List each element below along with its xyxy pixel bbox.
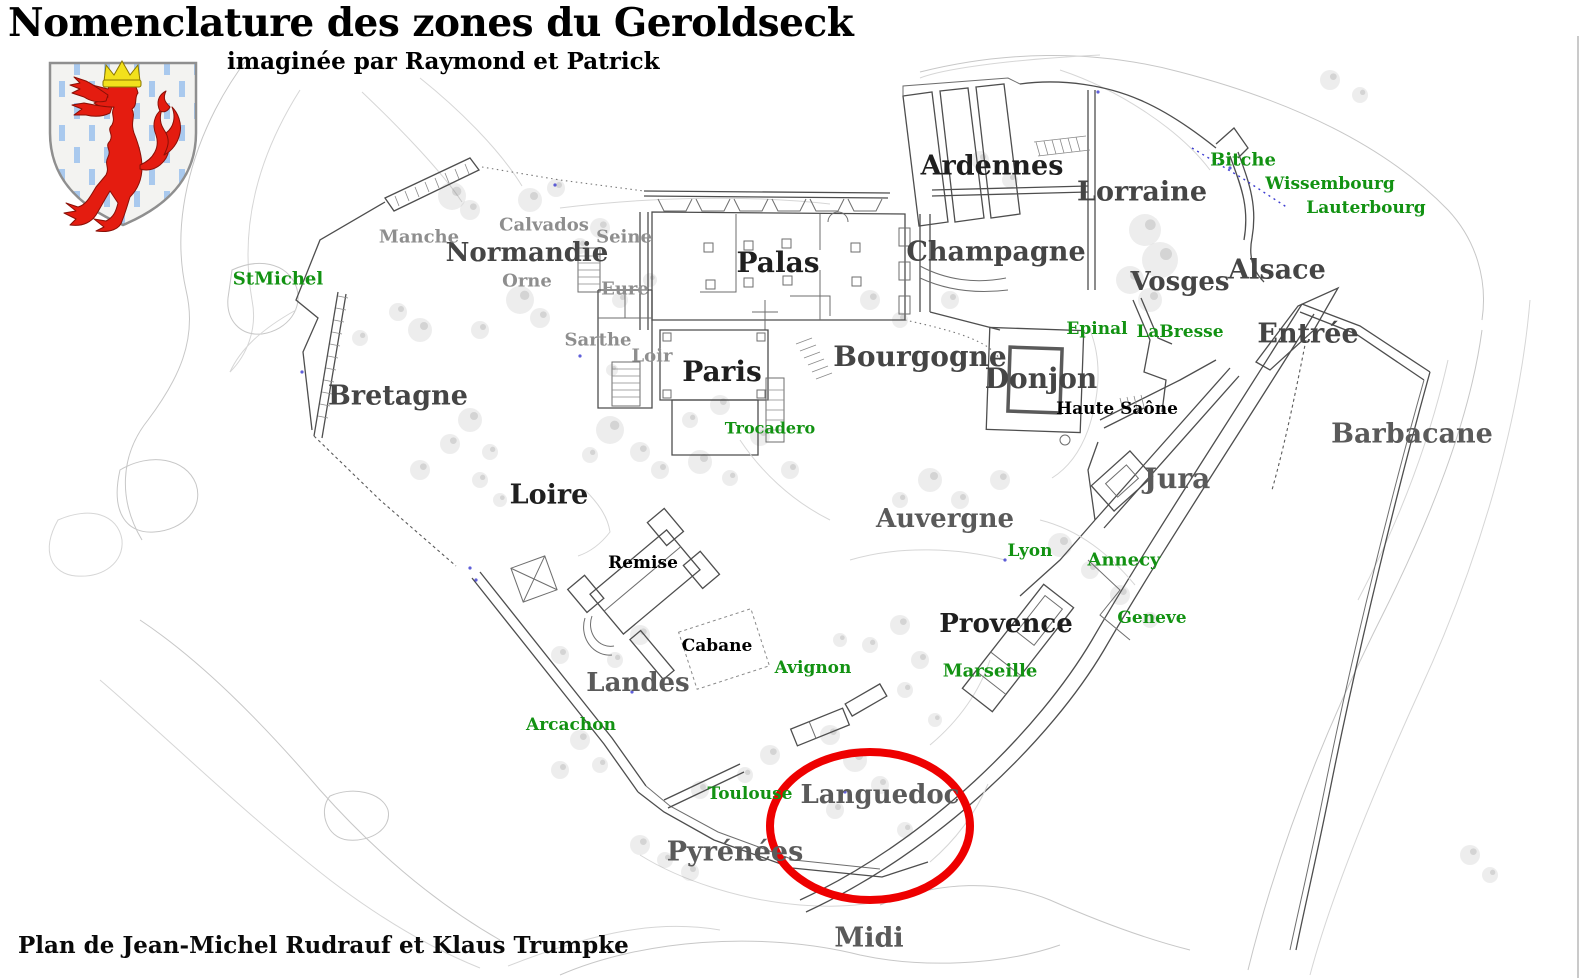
- zone-label-donjon: Donjon: [985, 365, 1097, 393]
- zone-label-toulouse: Toulouse: [708, 786, 793, 803]
- zone-label-pyrenees: Pyrénées: [667, 838, 804, 865]
- zone-label-haute-saone: Haute Saône: [1056, 401, 1178, 418]
- zone-label-manche: Manche: [379, 228, 459, 246]
- zone-label-jura: Jura: [1144, 465, 1211, 493]
- zone-label-languedoc: Languedoc: [800, 782, 959, 808]
- zone-label-auvergne: Auvergne: [876, 506, 1014, 532]
- zone-label-labresse: LaBresse: [1136, 324, 1223, 341]
- castle-plan-drawing: [0, 0, 1583, 978]
- zone-label-champagne: Champagne: [906, 238, 1085, 265]
- zone-label-seine: Seine: [596, 228, 652, 246]
- zone-label-ardennes: Ardennes: [921, 152, 1064, 179]
- zone-label-avignon: Avignon: [775, 660, 852, 677]
- zone-label-remise: Remise: [608, 555, 678, 572]
- zone-label-bourgogne: Bourgogne: [833, 343, 1006, 371]
- zone-label-annecy: Annecy: [1087, 551, 1160, 569]
- castle-walls: [230, 78, 1430, 950]
- zone-label-epinal: Epinal: [1066, 321, 1127, 338]
- zone-label-stmichel: StMichel: [233, 270, 323, 288]
- zone-label-loire: Loire: [510, 481, 589, 508]
- zone-label-lyon: Lyon: [1008, 543, 1053, 560]
- page-subtitle: imaginée par Raymond et Patrick: [227, 48, 660, 75]
- zone-label-calvados: Calvados: [499, 216, 589, 234]
- zone-label-paris: Paris: [682, 358, 762, 386]
- zone-label-lauterbourg: Lauterbourg: [1306, 200, 1425, 217]
- zone-label-orne: Orne: [502, 272, 552, 290]
- zone-label-loir: Loir: [632, 347, 673, 365]
- zone-label-entree: Entrée: [1257, 320, 1358, 347]
- zone-label-eure: Eure: [601, 280, 649, 298]
- zone-label-lorraine: Lorraine: [1077, 178, 1207, 205]
- page-title: Nomenclature des zones du Geroldseck: [8, 0, 853, 46]
- zone-label-alsace: Alsace: [1228, 256, 1326, 283]
- zone-label-cabane: Cabane: [682, 638, 753, 655]
- zone-label-vosges: Vosges: [1130, 269, 1229, 295]
- zone-label-midi: Midi: [834, 924, 903, 951]
- zone-label-trocadero: Trocadero: [725, 420, 815, 436]
- zone-label-wissembourg: Wissembourg: [1265, 176, 1395, 193]
- zone-label-provence: Provence: [939, 611, 1073, 637]
- zone-label-barbacane: Barbacane: [1331, 420, 1493, 447]
- zone-label-sarthe: Sarthe: [565, 331, 632, 349]
- plan-credit: Plan de Jean-Michel Rudrauf et Klaus Tru…: [18, 932, 629, 959]
- zone-label-marseille: Marseille: [943, 662, 1038, 680]
- zone-label-bretagne: Bretagne: [328, 382, 468, 409]
- zone-label-landes: Landes: [586, 670, 689, 696]
- coat-of-arms: [40, 55, 206, 233]
- zone-label-arcachon: Arcachon: [526, 717, 616, 734]
- zone-label-palas: Palas: [737, 249, 820, 277]
- zone-label-bitche: Bitche: [1210, 151, 1276, 169]
- geroldseck-zone-map: Nomenclature des zones du Geroldseck ima…: [0, 0, 1583, 978]
- zone-label-geneve: Geneve: [1117, 610, 1186, 627]
- zone-label-normandie: Normandie: [446, 240, 609, 266]
